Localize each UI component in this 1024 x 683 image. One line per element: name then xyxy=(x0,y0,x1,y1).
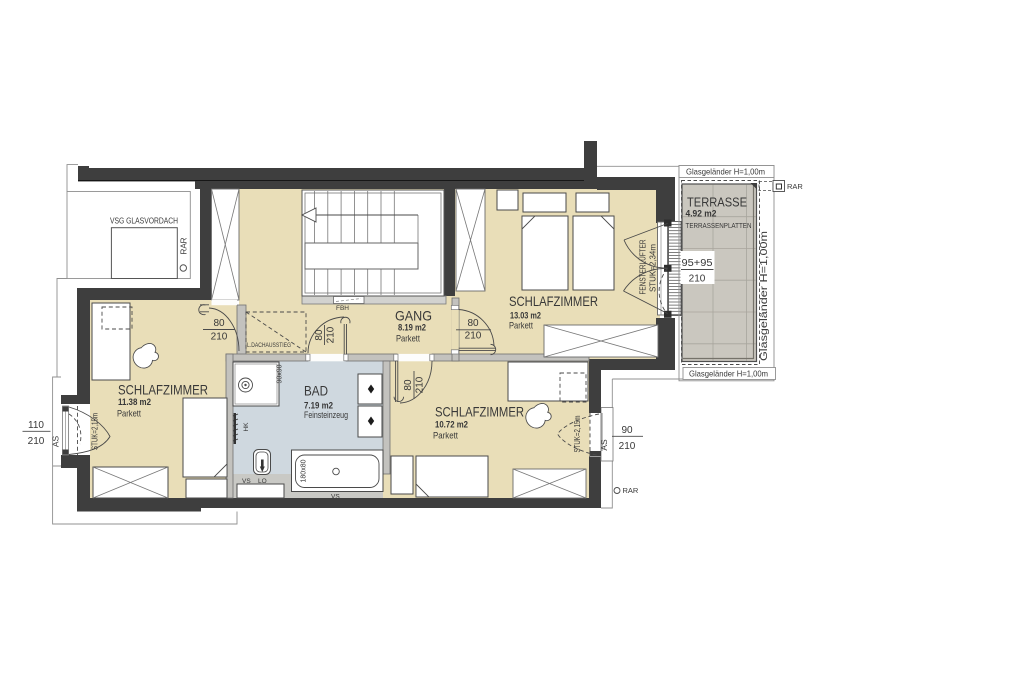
svg-text:80: 80 xyxy=(467,318,479,329)
svg-text:90: 90 xyxy=(621,425,633,436)
svg-text:90x90: 90x90 xyxy=(277,364,284,383)
svg-text:VSG GLASVORDACH: VSG GLASVORDACH xyxy=(110,216,178,226)
svg-text:Glasgeländer H=1,00m: Glasgeländer H=1,00m xyxy=(686,167,765,177)
svg-text:FENSTERLÜFTER: FENSTERLÜFTER xyxy=(638,240,648,295)
svg-text:80: 80 xyxy=(403,379,414,391)
svg-text:95+95: 95+95 xyxy=(682,258,713,269)
svg-text:TERRASSENPLATTEN: TERRASSENPLATTEN xyxy=(686,223,752,230)
svg-text:210: 210 xyxy=(211,332,228,343)
svg-text:210: 210 xyxy=(326,326,337,343)
svg-text:HK: HK xyxy=(243,422,250,432)
svg-text:STUK=2,15m: STUK=2,15m xyxy=(90,413,100,450)
svg-text:STUK=2,34m: STUK=2,34m xyxy=(648,244,658,292)
svg-text:Parkett: Parkett xyxy=(396,334,420,345)
svg-text:VS: VS xyxy=(331,494,340,501)
svg-text:GANG: GANG xyxy=(395,308,432,324)
svg-text:RAR: RAR xyxy=(179,238,189,255)
svg-text:FBH: FBH xyxy=(336,305,349,312)
svg-text:SCHLAFZIMMER: SCHLAFZIMMER xyxy=(118,382,208,398)
svg-text:STUK=2,15m: STUK=2,15m xyxy=(572,416,582,453)
svg-text:BAD: BAD xyxy=(304,383,328,399)
svg-text:Glasgeländer H=1,00m: Glasgeländer H=1,00m xyxy=(758,231,770,361)
svg-text:210: 210 xyxy=(415,376,426,393)
svg-text:Parkett: Parkett xyxy=(509,321,533,332)
svg-text:RAR: RAR xyxy=(623,486,639,495)
svg-text:210: 210 xyxy=(465,331,482,342)
svg-text:SCHLAFZIMMER: SCHLAFZIMMER xyxy=(435,404,524,420)
svg-text:Glasgeländer H=1,00m: Glasgeländer H=1,00m xyxy=(689,369,768,379)
svg-text:4.92 m2: 4.92 m2 xyxy=(686,209,717,220)
svg-text:L.DACHAUSSTIEG: L.DACHAUSSTIEG xyxy=(247,342,291,349)
svg-text:110: 110 xyxy=(28,420,44,431)
svg-text:Parkett: Parkett xyxy=(117,409,141,420)
svg-text:AS: AS xyxy=(51,436,61,448)
svg-text:210: 210 xyxy=(619,441,636,452)
svg-text:80: 80 xyxy=(314,329,325,341)
svg-text:210: 210 xyxy=(28,436,45,447)
svg-text:Feinsteinzeug: Feinsteinzeug xyxy=(304,410,348,421)
svg-text:180x80: 180x80 xyxy=(301,459,308,482)
svg-text:11.38 m2: 11.38 m2 xyxy=(118,397,151,408)
svg-text:210: 210 xyxy=(689,274,706,285)
svg-text:10.72 m2: 10.72 m2 xyxy=(435,420,468,431)
svg-text:TERRASSE: TERRASSE xyxy=(687,195,747,210)
svg-text:AS: AS xyxy=(599,439,609,451)
svg-text:Parkett: Parkett xyxy=(433,431,458,442)
svg-text:SCHLAFZIMMER: SCHLAFZIMMER xyxy=(509,293,598,309)
svg-text:RAR: RAR xyxy=(787,182,803,191)
svg-text:8.19 m2: 8.19 m2 xyxy=(398,323,426,334)
svg-text:80: 80 xyxy=(213,318,225,329)
